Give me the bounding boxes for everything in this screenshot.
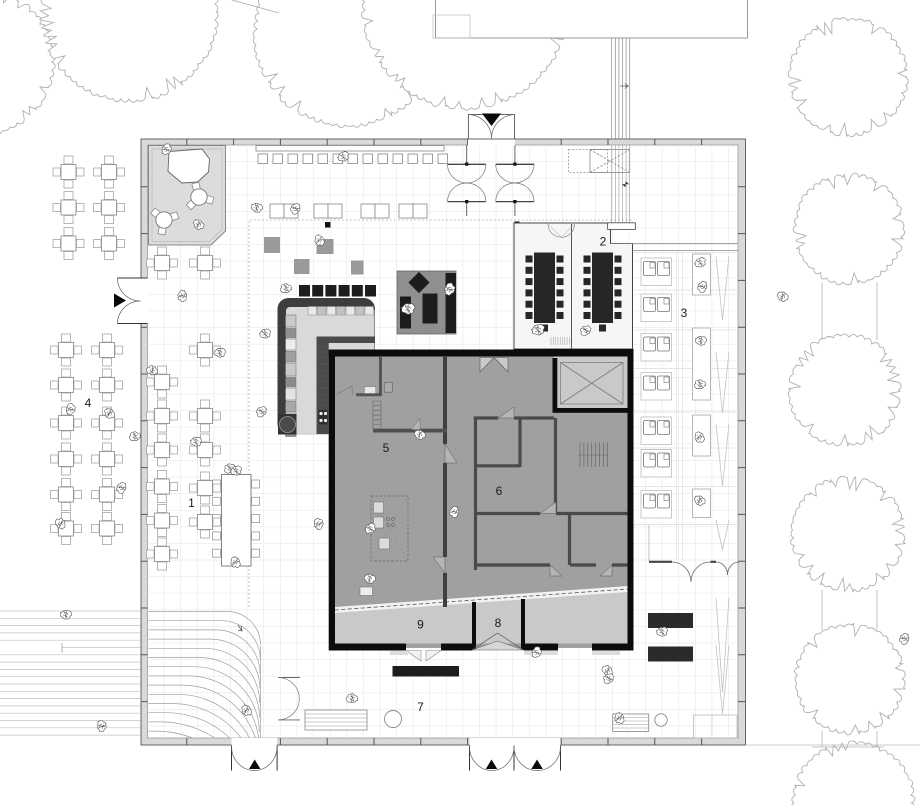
svg-text:4: 4 (85, 396, 92, 410)
svg-text:3: 3 (681, 306, 688, 320)
svg-text:5: 5 (383, 441, 390, 455)
svg-text:7: 7 (417, 700, 424, 714)
svg-text:2: 2 (600, 235, 607, 249)
svg-text:1: 1 (188, 496, 195, 510)
svg-text:8: 8 (495, 616, 502, 630)
svg-text:9: 9 (417, 618, 424, 632)
svg-text:6: 6 (496, 484, 503, 498)
